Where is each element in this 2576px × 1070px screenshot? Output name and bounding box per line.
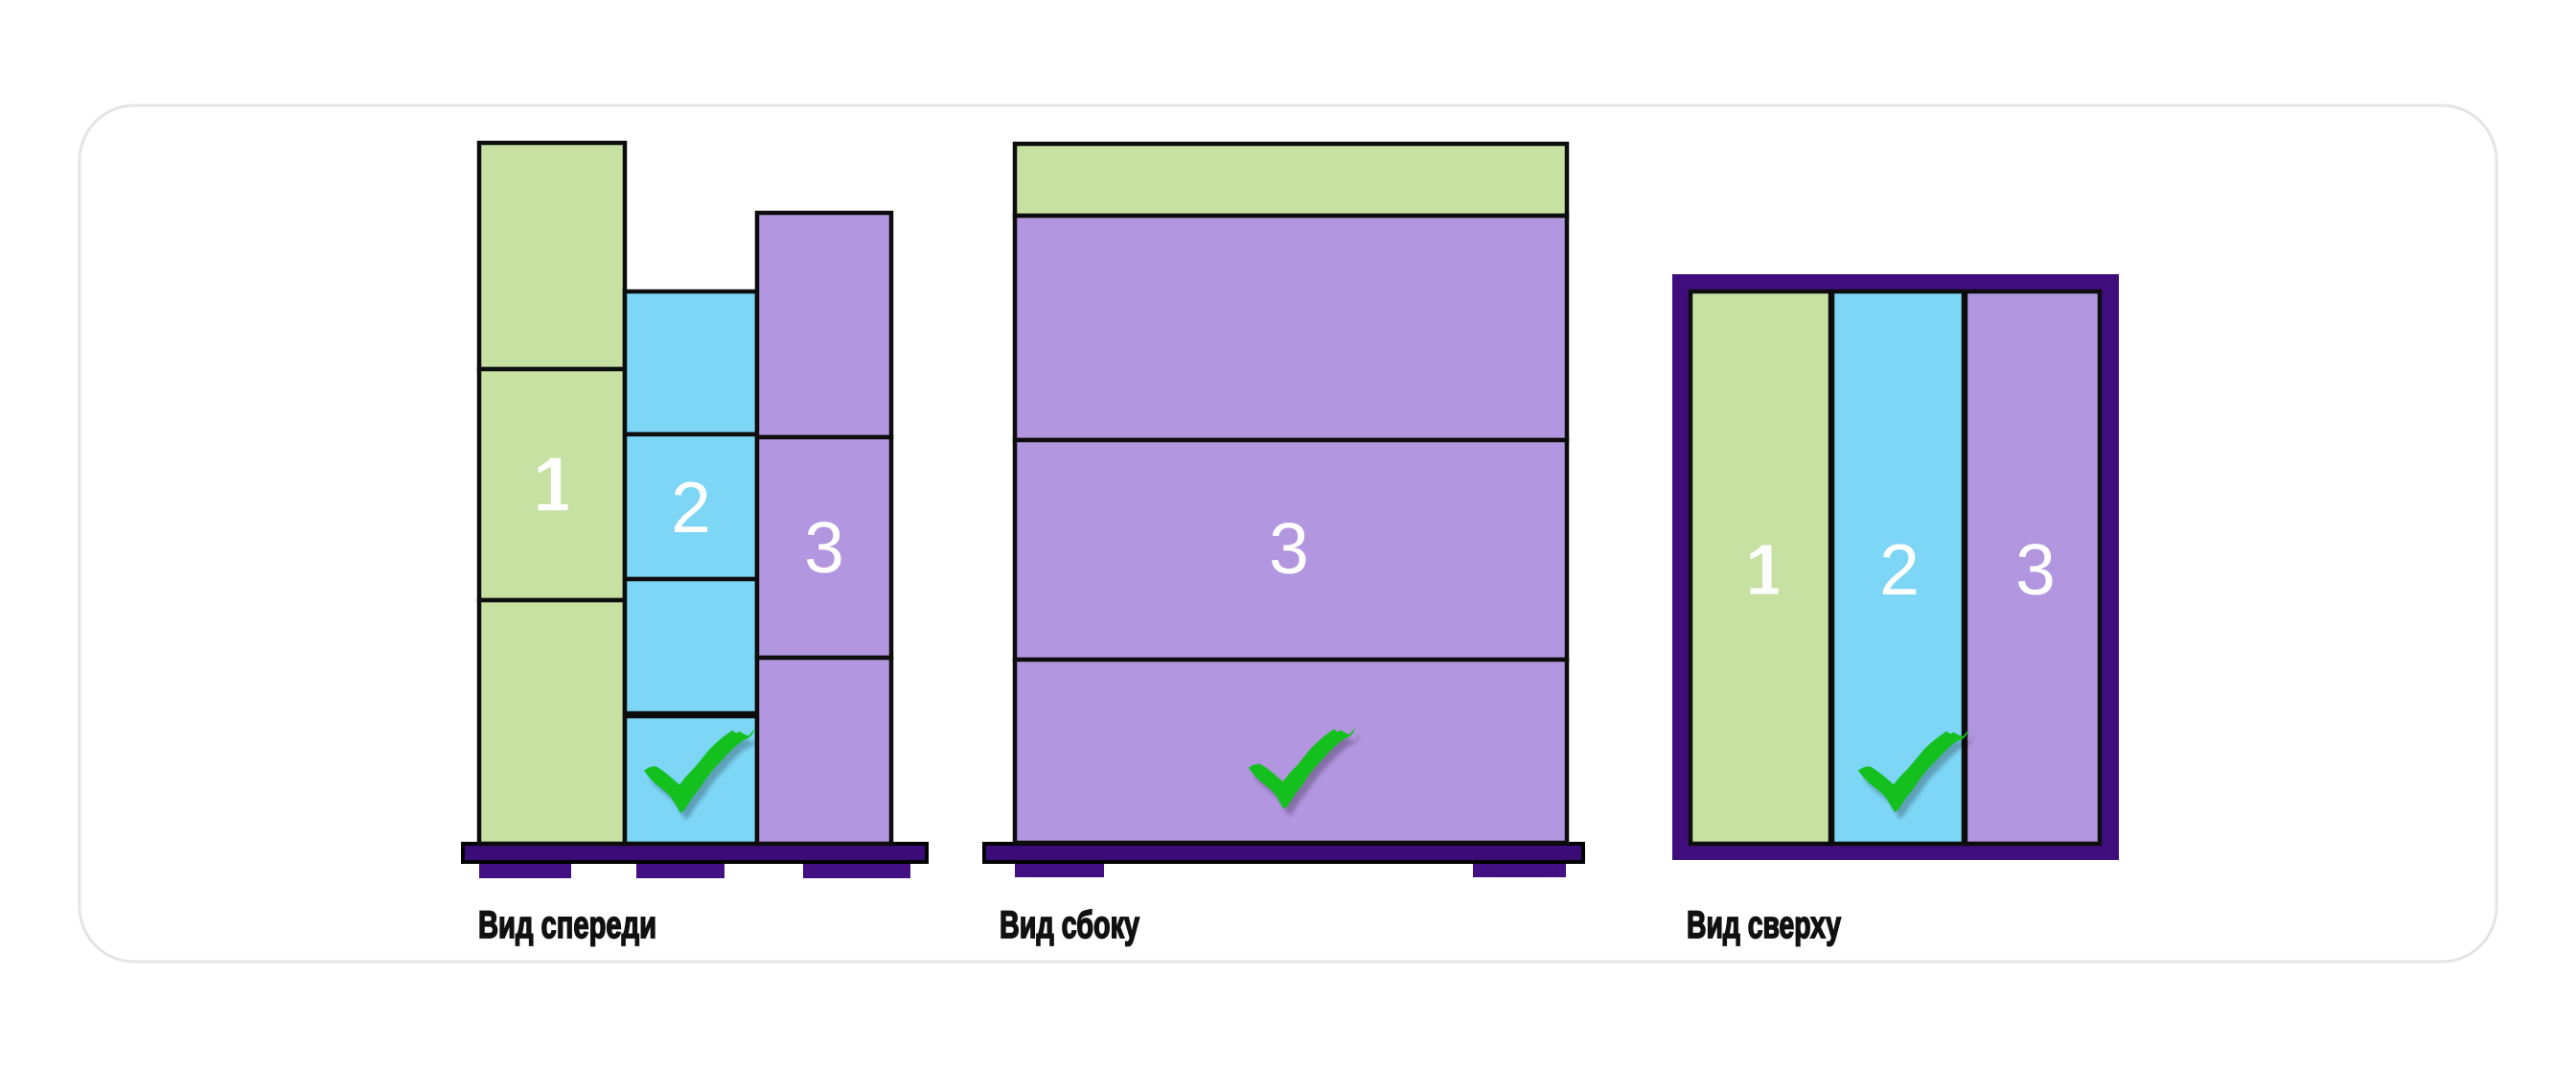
svg-text:Вид сверху: Вид сверху bbox=[1687, 904, 1842, 946]
svg-text:3: 3 bbox=[2015, 529, 2056, 610]
svg-text:Вид сбоку: Вид сбоку bbox=[1000, 904, 1140, 946]
svg-text:3: 3 bbox=[804, 507, 844, 588]
svg-text:2: 2 bbox=[671, 467, 711, 547]
svg-text:2: 2 bbox=[1879, 529, 1920, 610]
svg-text:Вид спереди: Вид спереди bbox=[478, 904, 656, 946]
svg-text:3: 3 bbox=[1269, 508, 1309, 589]
